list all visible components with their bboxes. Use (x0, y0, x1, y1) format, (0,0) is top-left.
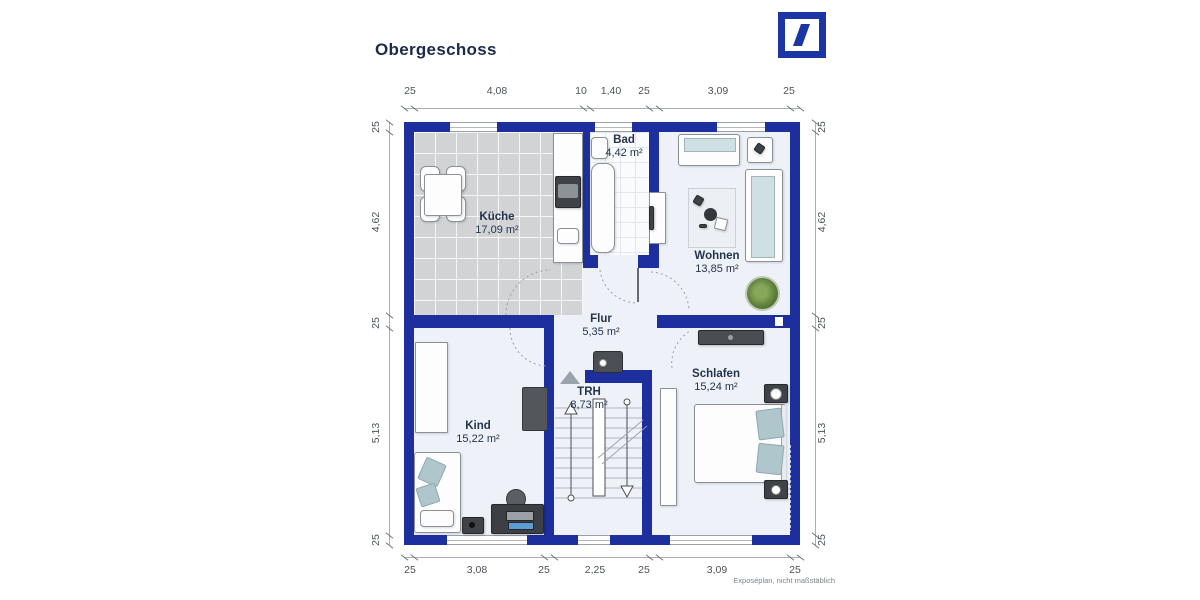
wall-kitchen-bathroom (583, 132, 590, 255)
wall-top (632, 122, 717, 132)
wardrobe (415, 342, 448, 433)
dimension-label: 25 (516, 564, 572, 576)
dimension-label: 25 (816, 518, 830, 562)
plant (747, 278, 778, 309)
sofa-cushion (684, 138, 736, 152)
kitchen-sink (557, 228, 579, 244)
chaise-cushion (751, 176, 775, 258)
room-area: 17,09 m² (475, 224, 518, 237)
nightstand-knob (469, 522, 475, 528)
dimension-label: 25 (816, 301, 830, 345)
wall-notch (775, 317, 783, 326)
pillow (755, 408, 784, 441)
room-area: 8,73 m² (570, 399, 607, 412)
dimension-label: 4,62 (816, 200, 830, 244)
tv (649, 206, 654, 230)
dimension-label: 3,09 (689, 564, 745, 576)
dimension-label: 25 (761, 85, 817, 97)
room-area: 13,85 m² (694, 263, 739, 276)
oven-door (558, 184, 578, 198)
room-label: Kind15,22 m² (456, 420, 499, 446)
room-area: 15,22 m² (456, 433, 499, 446)
wall-right (790, 122, 800, 545)
sideboard-knob (728, 335, 733, 340)
laptop-keyboard (508, 522, 534, 530)
window-bathroom (595, 122, 632, 132)
laptop-screen (506, 511, 534, 521)
dimension-label: 25 (767, 564, 823, 576)
room-name: Bad (605, 134, 642, 147)
remote (699, 224, 707, 228)
dimension-label: 3,09 (690, 85, 746, 97)
room-label: TRH8,73 m² (570, 386, 607, 412)
dimension-label: 25 (382, 85, 438, 97)
room-area: 5,35 m² (582, 326, 619, 339)
deutsche-bank-logo (778, 12, 826, 58)
radiator (593, 351, 623, 373)
wall-watermark (788, 445, 791, 531)
dimension-label: 2,25 (567, 564, 623, 576)
dimension-label: 25 (616, 85, 672, 97)
wardrobe (660, 388, 677, 506)
radiator-knob (599, 359, 607, 367)
window-bedroom (670, 535, 752, 545)
dimension-line-left (389, 122, 390, 545)
room-label: Küche17,09 m² (475, 211, 518, 237)
room-name: Schlafen (692, 368, 740, 381)
room-name: Kind (456, 420, 499, 433)
floorplan-page: Obergeschoss (0, 0, 1200, 600)
wall-bathroom-bottom (583, 255, 598, 268)
dimension-label: 5,13 (816, 411, 830, 455)
wall-middle-left (404, 315, 551, 328)
room-label: Wohnen13,85 m² (694, 250, 739, 276)
dimension-label: 3,08 (449, 564, 505, 576)
room-name: Küche (475, 211, 518, 224)
footnote: Exposéplan, nicht maßstäblich (595, 576, 835, 585)
room-area: 4,42 m² (605, 147, 642, 160)
wall-stairwell-bedroom (642, 370, 652, 545)
dimension-label: 25 (816, 105, 830, 149)
dimension-label: 25 (370, 105, 384, 149)
room-name: Flur (582, 313, 619, 326)
dimension-line-bottom (404, 557, 800, 558)
room-label: Bad4,42 m² (605, 134, 642, 160)
dimension-label: 5,13 (370, 411, 384, 455)
window-child-room (447, 535, 527, 545)
dimension-line-top (404, 108, 800, 109)
dimension-label: 25 (616, 564, 672, 576)
lamp (771, 485, 781, 495)
window-living (717, 122, 765, 132)
dimension-label: 25 (370, 301, 384, 345)
dining-table (424, 174, 462, 216)
logo-slash-icon (793, 24, 810, 46)
wall-middle-right (657, 315, 790, 328)
page-title: Obergeschoss (375, 40, 497, 60)
dimension-label: 25 (382, 564, 438, 576)
wall-bottom (610, 535, 670, 545)
wall-top (497, 122, 595, 132)
room-name: TRH (570, 386, 607, 399)
window-stairwell (578, 535, 610, 545)
window-kitchen (450, 122, 497, 132)
wall-left (404, 122, 414, 545)
dimension-label: 4,08 (469, 85, 525, 97)
pillow (756, 443, 785, 476)
dimension-label: 4,62 (370, 200, 384, 244)
room-name: Wohnen (694, 250, 739, 263)
room-label: Schlafen15,24 m² (692, 368, 740, 394)
dimension-label: 25 (370, 518, 384, 562)
lamp (770, 388, 782, 400)
shelf (522, 387, 548, 431)
room-label: Flur5,35 m² (582, 313, 619, 339)
room-area: 15,24 m² (692, 381, 740, 394)
bathtub (591, 163, 615, 253)
bed-pillow (420, 510, 454, 527)
